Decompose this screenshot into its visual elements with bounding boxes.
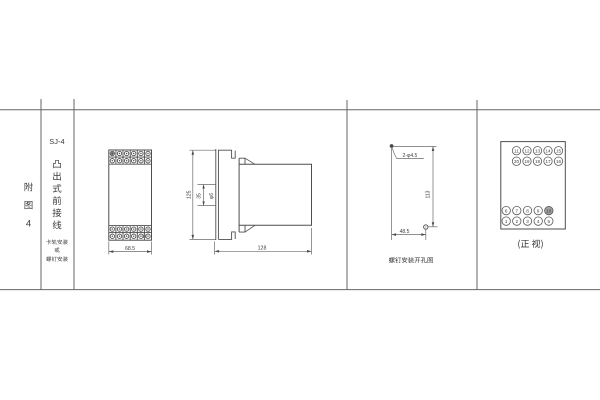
svg-text:SJ-4: SJ-4: [49, 137, 64, 146]
svg-text:68.5: 68.5: [125, 246, 135, 252]
svg-text:12: 12: [524, 148, 530, 153]
svg-text:113: 113: [425, 190, 431, 198]
svg-text:1: 1: [505, 219, 508, 224]
svg-text:6: 6: [505, 208, 508, 213]
svg-text:35: 35: [197, 193, 203, 199]
svg-text:19: 19: [524, 159, 530, 164]
svg-text:φ6: φ6: [209, 193, 215, 199]
svg-text:2: 2: [516, 219, 519, 224]
svg-text:7: 7: [516, 208, 519, 213]
svg-text:13: 13: [535, 148, 541, 153]
svg-text:20: 20: [514, 159, 520, 164]
svg-text:15: 15: [556, 148, 562, 153]
svg-text:10: 10: [546, 208, 552, 213]
svg-text:5: 5: [548, 219, 551, 224]
svg-text:48.5: 48.5: [400, 229, 410, 235]
svg-text:8: 8: [526, 208, 529, 213]
svg-text:4: 4: [537, 219, 540, 224]
svg-text:16: 16: [556, 159, 562, 164]
svg-text:11: 11: [514, 148, 519, 153]
svg-text:14: 14: [545, 148, 551, 153]
svg-text:17: 17: [545, 159, 551, 164]
svg-text:2-φ4.5: 2-φ4.5: [403, 153, 418, 159]
svg-text:4: 4: [26, 219, 31, 230]
svg-text:3: 3: [526, 219, 529, 224]
svg-text:9: 9: [537, 208, 540, 213]
svg-text:18: 18: [535, 159, 541, 164]
svg-text:128: 128: [258, 246, 267, 252]
svg-text:125: 125: [187, 190, 193, 199]
